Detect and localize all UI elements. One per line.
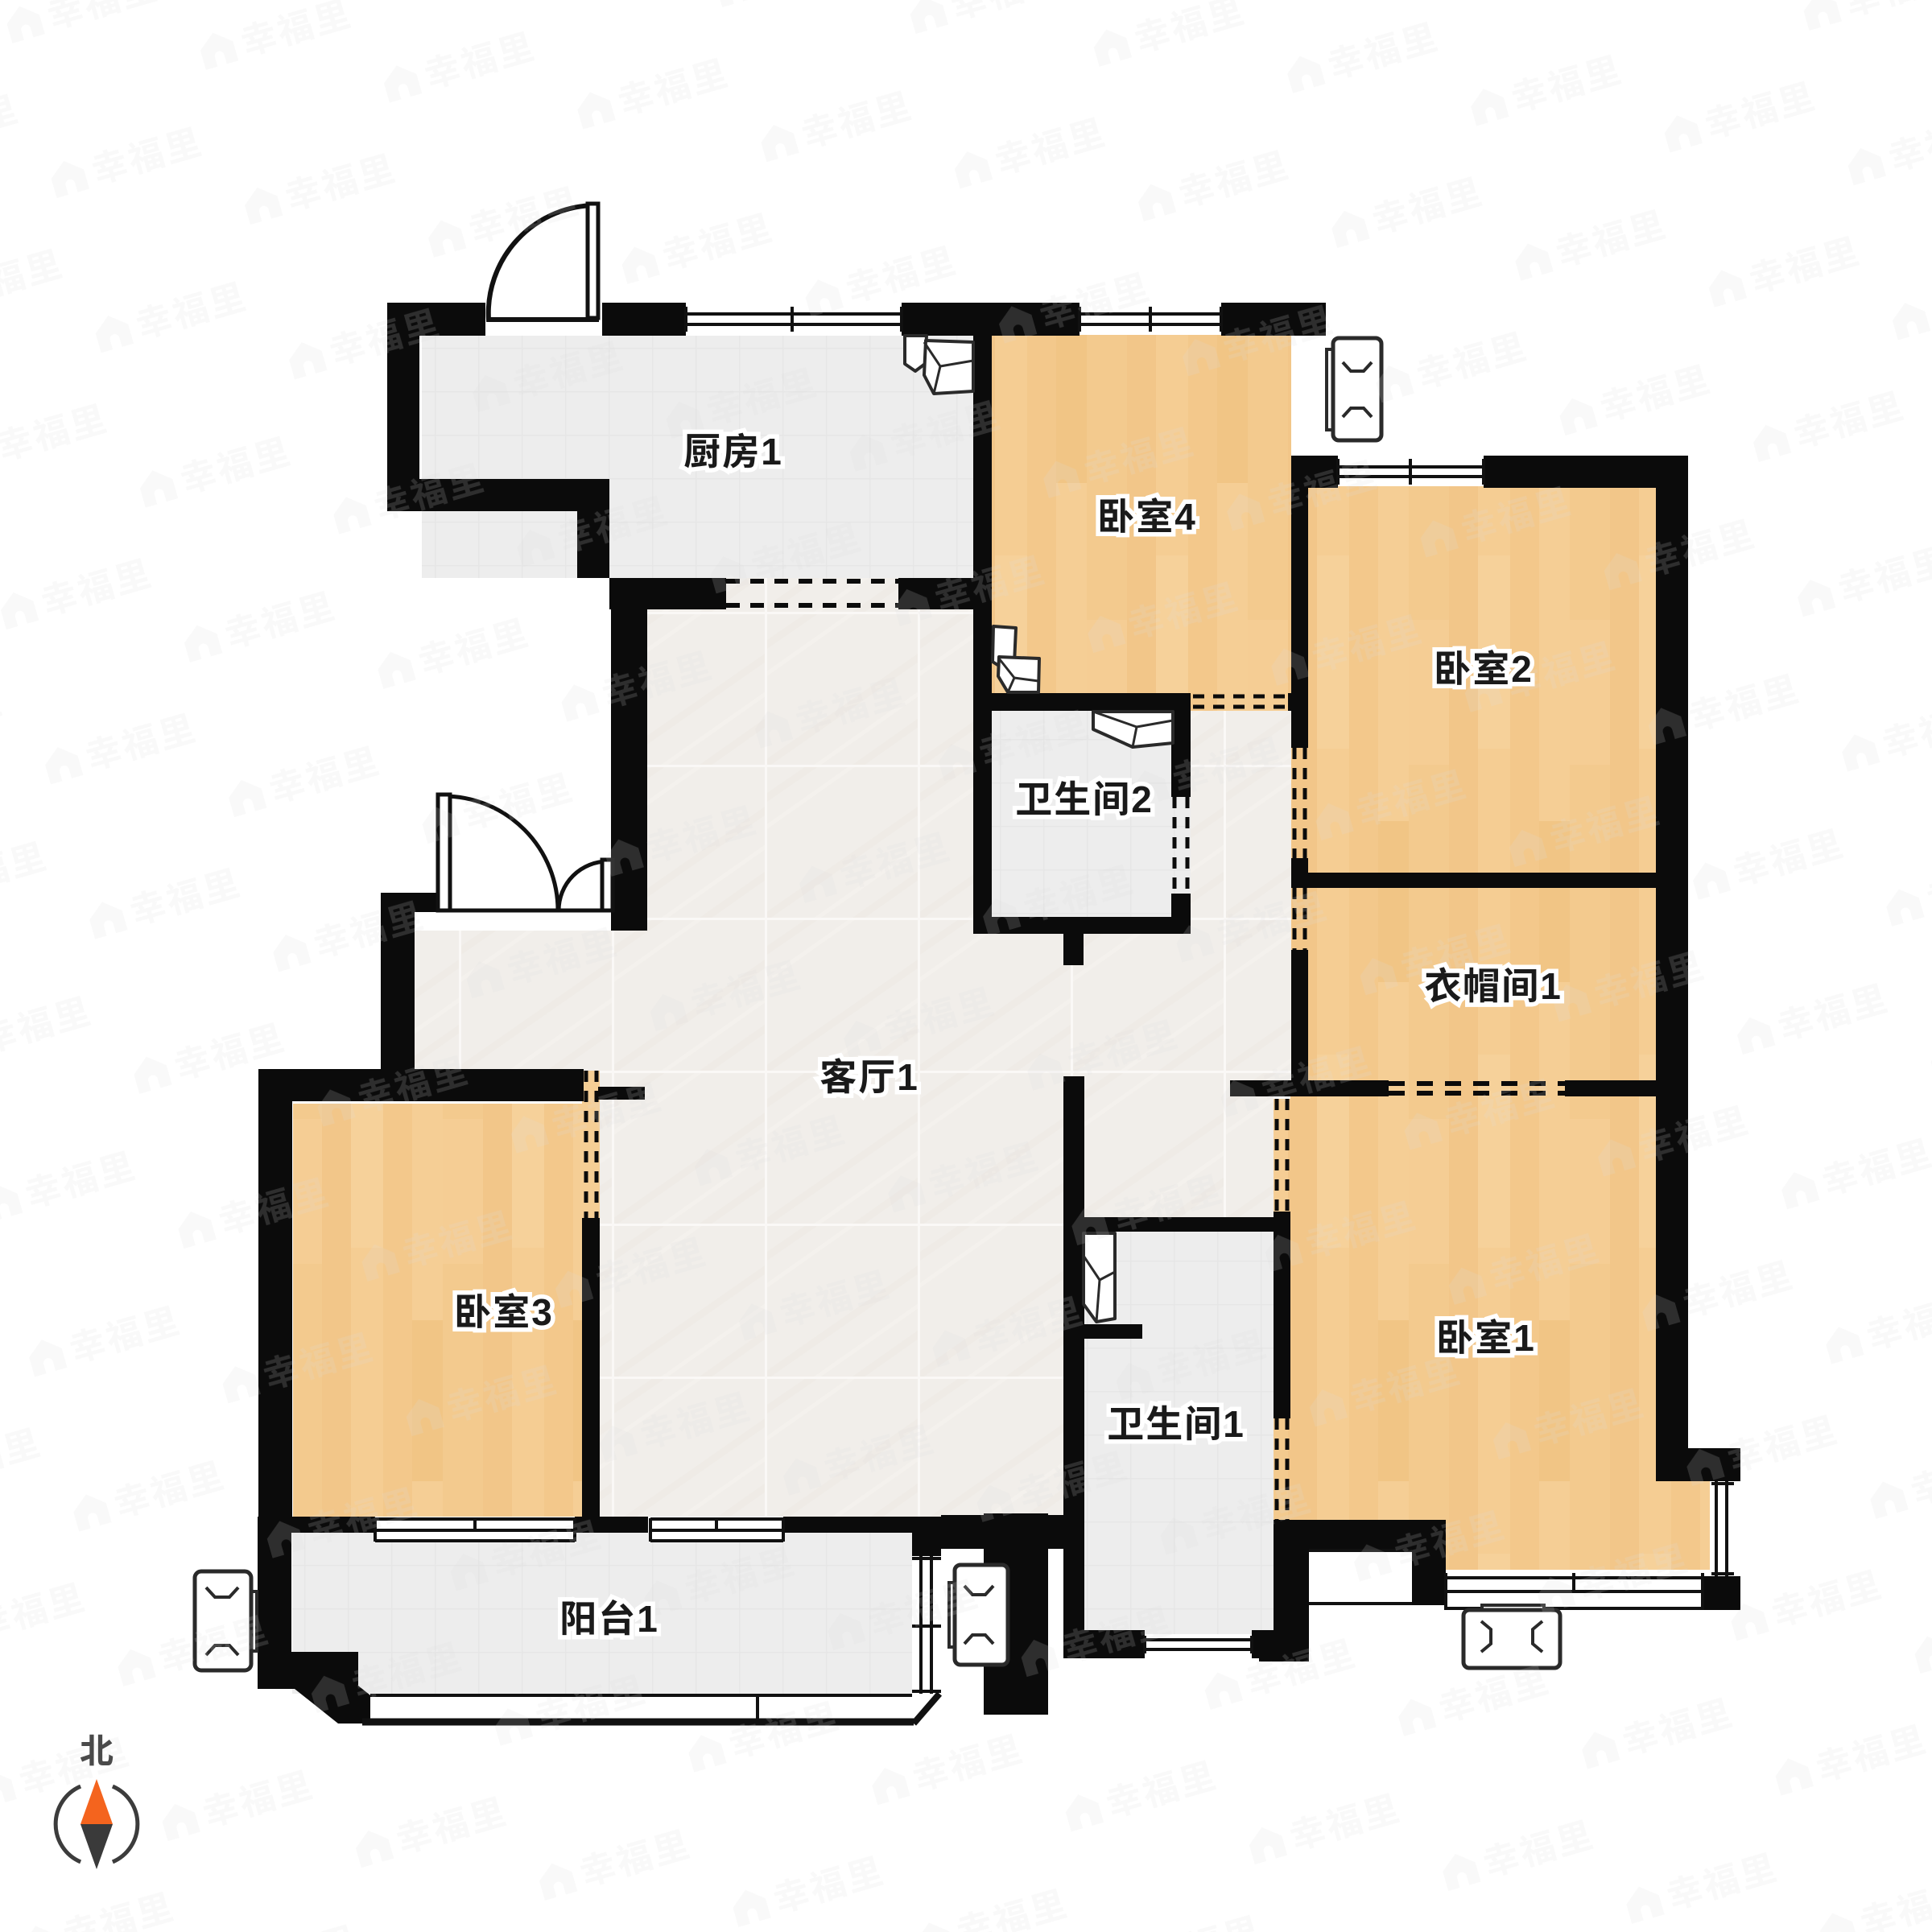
svg-text:厨房1: 厨房1 — [683, 431, 783, 473]
svg-text:卧室4: 卧室4 — [1097, 496, 1197, 538]
svg-text:客厅1: 客厅1 — [819, 1056, 919, 1098]
svg-text:衣帽间1: 衣帽间1 — [1424, 965, 1563, 1007]
svg-text:北: 北 — [80, 1732, 114, 1770]
svg-text:卧室3: 卧室3 — [454, 1291, 554, 1333]
svg-text:卧室2: 卧室2 — [1434, 648, 1534, 690]
svg-text:卫生间1: 卫生间1 — [1107, 1403, 1245, 1445]
svg-text:阳台1: 阳台1 — [559, 1598, 659, 1640]
svg-text:卫生间2: 卫生间2 — [1015, 778, 1154, 820]
svg-text:卧室1: 卧室1 — [1436, 1317, 1536, 1359]
